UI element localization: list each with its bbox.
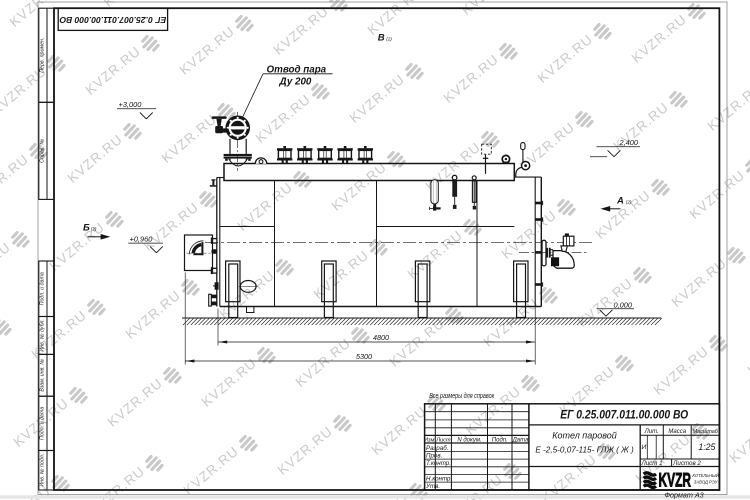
svg-text:Справ. №: Справ. №	[40, 138, 46, 162]
svg-text:И: И	[641, 444, 646, 451]
svg-text:KVZR.RU: KVZR.RU	[271, 3, 332, 58]
svg-text:KVZR.RU: KVZR.RU	[105, 375, 166, 430]
svg-text:КОТЕЛЬНЫЙ: КОТЕЛЬНЫЙ	[692, 473, 718, 478]
svg-text:KVZR.RU: KVZR.RU	[253, 91, 314, 146]
svg-text:N докум.: N докум.	[457, 438, 481, 444]
svg-text:KVZR.RU: KVZR.RU	[123, 287, 184, 342]
svg-text:Пров.: Пров.	[426, 452, 442, 459]
svg-text:KVZR.RU: KVZR.RU	[159, 111, 220, 166]
svg-text:KVZR.RU: KVZR.RU	[405, 227, 466, 282]
svg-text:Все размеры для справок: Все размеры для справок	[429, 392, 495, 400]
svg-text:KVZR.RU: KVZR.RU	[199, 355, 260, 410]
svg-text:KVZR.RU: KVZR.RU	[369, 403, 430, 458]
svg-text:Ду 200: Ду 200	[279, 76, 312, 87]
svg-text:KVZR.RU: KVZR.RU	[727, 411, 750, 466]
svg-text:4800: 4800	[373, 333, 389, 342]
svg-text:KVZR.RU: KVZR.RU	[463, 383, 524, 438]
svg-text:А: А	[616, 196, 624, 207]
svg-text:Взам. инв. №: Взам. инв. №	[40, 359, 46, 392]
svg-text:Б: Б	[83, 223, 90, 234]
svg-text:Перв. примен.: Перв. примен.	[40, 38, 46, 73]
svg-text:KVZR.RU: KVZR.RU	[687, 167, 748, 222]
svg-text:Масса: Масса	[668, 429, 686, 435]
svg-text:KVZR.RU: KVZR.RU	[539, 451, 600, 500]
svg-text:KVZR.RU: KVZR.RU	[669, 255, 730, 310]
svg-text:ЕГ 0.25.007.011.00.000 ВО: ЕГ 0.25.007.011.00.000 ВО	[59, 15, 166, 25]
svg-text:+3,000: +3,000	[119, 100, 143, 109]
svg-text:(2): (2)	[386, 36, 392, 41]
svg-text:KVZR.RU: KVZR.RU	[275, 423, 336, 478]
svg-text:Е -2,5-0,07-115- ГЛЖ ( Ж ): Е -2,5-0,07-115- ГЛЖ ( Ж )	[535, 446, 634, 455]
svg-text:Подп. и дата: Подп. и дата	[40, 407, 46, 440]
svg-text:Т.контр.: Т.контр.	[426, 460, 451, 467]
svg-text:Н.контр.: Н.контр.	[426, 475, 452, 482]
svg-text:(2): (2)	[626, 200, 632, 205]
svg-text:KVZR.RU: KVZR.RU	[65, 131, 126, 186]
svg-text:Лист 1: Лист 1	[640, 460, 662, 467]
svg-text:Разраб.: Разраб.	[426, 445, 448, 452]
svg-text:KVZR.RU: KVZR.RU	[0, 239, 14, 294]
svg-text:+0,960: +0,960	[130, 234, 154, 243]
svg-text:KVZR.RU: KVZR.RU	[293, 335, 354, 390]
svg-text:KVZR.RU: KVZR.RU	[329, 159, 390, 214]
svg-text:KVZR.RU: KVZR.RU	[651, 343, 712, 398]
svg-text:KVZR.RU: KVZR.RU	[311, 247, 372, 302]
svg-text:ЗАВОД РЭУ: ЗАВОД РЭУ	[694, 480, 719, 485]
svg-text:KVZR.RU: KVZR.RU	[387, 315, 448, 370]
svg-text:Масштаб: Масштаб	[693, 429, 719, 435]
svg-text:KVZR.RU: KVZR.RU	[629, 11, 690, 66]
svg-text:Утв.: Утв.	[425, 483, 440, 490]
svg-text:KVZR.RU: KVZR.RU	[441, 51, 502, 106]
svg-text:Листов 2: Листов 2	[672, 460, 701, 467]
svg-text:KVZR: KVZR	[659, 469, 692, 491]
svg-text:KVZR.RU: KVZR.RU	[235, 179, 296, 234]
svg-text:Инв. № дубл.: Инв. № дубл.	[40, 319, 46, 352]
svg-text:KVZR.RU: KVZR.RU	[47, 219, 108, 274]
svg-text:KVZR.RU: KVZR.RU	[83, 43, 144, 98]
svg-text:Подп.: Подп.	[492, 438, 508, 444]
svg-text:Подп. и дата: Подп. и дата	[40, 272, 46, 305]
svg-text:KVZR.RU: KVZR.RU	[535, 31, 596, 86]
svg-text:Котел паровой: Котел паровой	[552, 431, 617, 441]
svg-text:В: В	[378, 32, 385, 43]
svg-text:0,000: 0,000	[614, 300, 633, 309]
svg-text:2,400: 2,400	[619, 138, 639, 147]
svg-text:Лит.: Лит.	[644, 429, 659, 435]
svg-text:1:25: 1:25	[698, 442, 715, 452]
svg-text:Формат А3: Формат А3	[664, 490, 703, 499]
svg-text:(2): (2)	[91, 227, 97, 232]
svg-text:KVZR.RU: KVZR.RU	[365, 0, 426, 38]
svg-text:Дата: Дата	[512, 438, 529, 444]
svg-text:KVZR.RU: KVZR.RU	[347, 71, 408, 126]
svg-text:Лист: Лист	[435, 437, 451, 443]
svg-text:Инв. № подл.: Инв. № подл.	[40, 454, 46, 487]
svg-text:KVZR.RU: KVZR.RU	[745, 323, 750, 378]
svg-text:ЕГ 0.25.007.011.00.000 ВО: ЕГ 0.25.007.011.00.000 ВО	[560, 408, 688, 422]
svg-text:5300: 5300	[356, 352, 372, 361]
svg-text:KVZR.RU: KVZR.RU	[0, 151, 32, 206]
svg-text:KVZR.RU: KVZR.RU	[177, 23, 238, 78]
svg-text:Изм.: Изм.	[424, 437, 436, 443]
